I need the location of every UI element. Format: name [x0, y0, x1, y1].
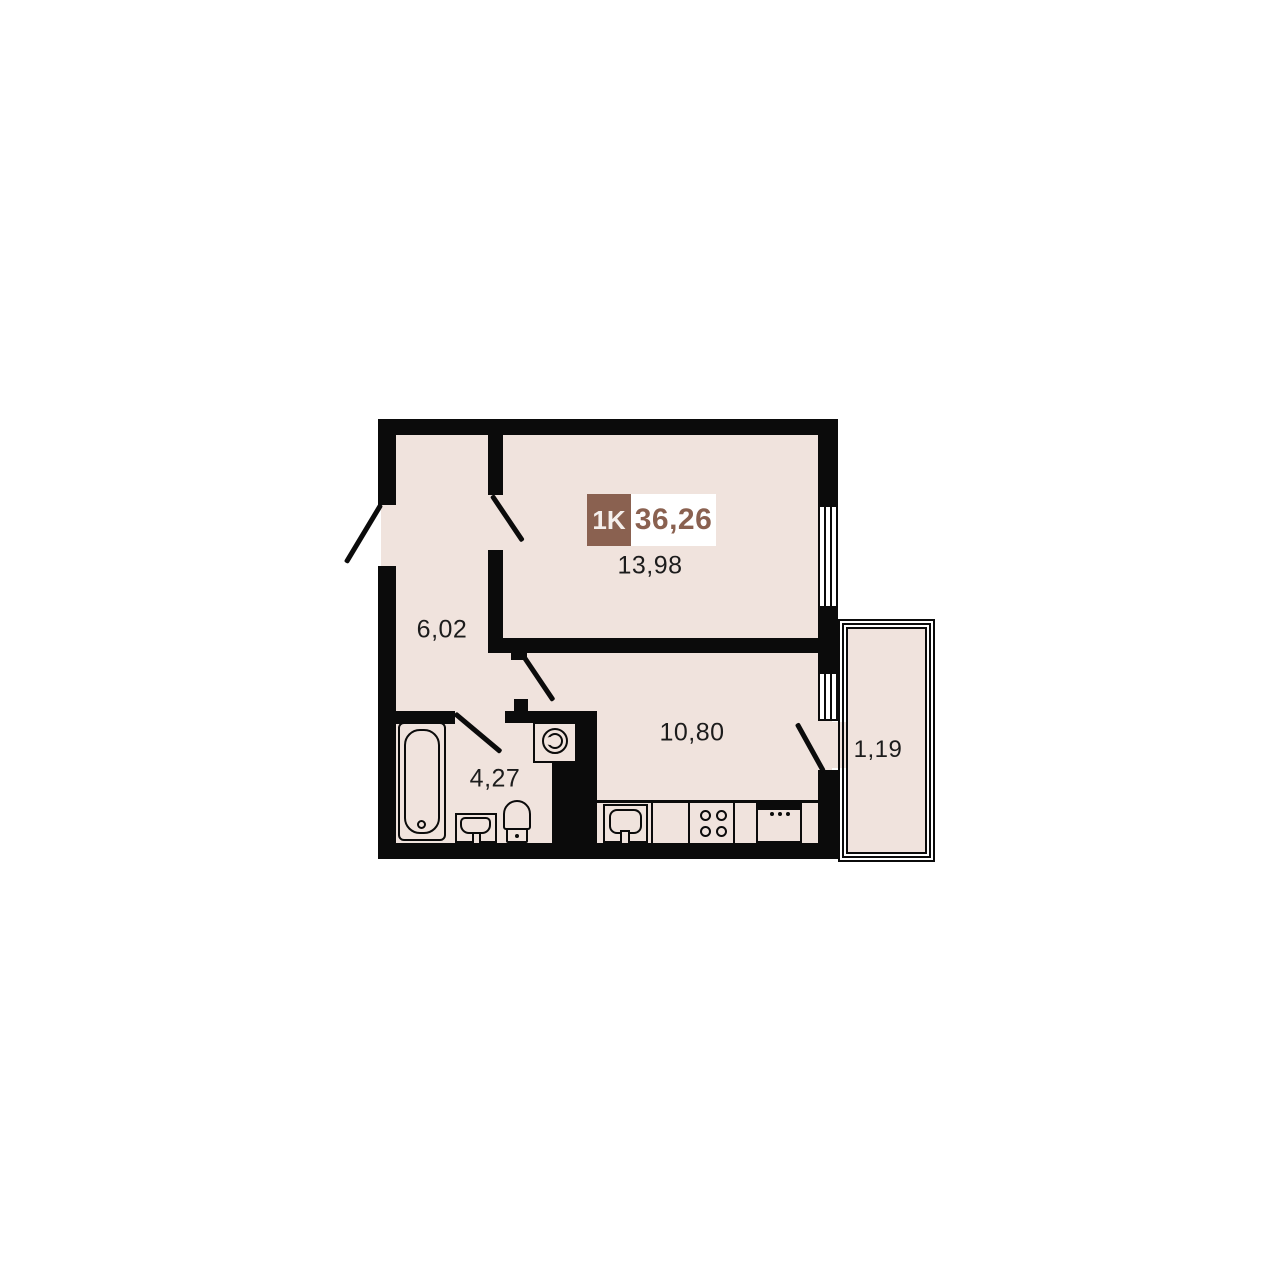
toilet-dot-icon [515, 834, 519, 838]
toilet-bowl-icon [503, 800, 531, 830]
counter-divider [651, 803, 653, 843]
wall-bathroom-bump [514, 699, 528, 711]
living-room-area-label: 13,98 [617, 552, 682, 581]
total-area-value: 36,26 [635, 503, 713, 537]
kitchen-window [818, 672, 838, 721]
kitchen-appliance-dot-icon [778, 812, 782, 816]
living-room-window [818, 505, 838, 608]
kitchen-appliance-strip-icon [758, 805, 800, 810]
kitchen-sink-tap-icon [620, 830, 630, 843]
wall-right-mid [818, 608, 838, 672]
wall-washer-step [552, 762, 577, 843]
entrance-door-swing-icon [344, 503, 383, 564]
stove-burner-icon [700, 826, 711, 837]
stove-burner-icon [716, 826, 727, 837]
wall-livingroom-bottom [488, 638, 818, 653]
bathtub-drain-icon [417, 820, 426, 829]
type-badge-label: 1K [592, 505, 625, 536]
stove-burner-icon [716, 810, 727, 821]
kitchen-appliance-dot-icon [770, 812, 774, 816]
wall-left-lower [378, 566, 396, 859]
stove-burner-icon [700, 810, 711, 821]
bathroom-sink-tap-icon [472, 832, 481, 843]
wall-top [378, 419, 838, 435]
window-pane-icon [824, 674, 826, 719]
wall-bottom [378, 843, 838, 859]
washing-machine-notch-icon [546, 737, 554, 745]
wall-partition-lower [488, 550, 503, 645]
bathtub-inner-icon [404, 729, 440, 834]
hallway-area-label: 6,02 [417, 616, 468, 645]
wall-bathroom-right [577, 711, 597, 843]
type-badge: 1K [587, 494, 631, 546]
wall-right-lower [818, 770, 838, 859]
wall-left-upper [378, 419, 396, 505]
kitchen-appliance-dot-icon [786, 812, 790, 816]
total-area-badge: 36,26 [631, 494, 716, 546]
balcony-area-label: 1,19 [854, 736, 903, 764]
wall-partition-upper [488, 433, 503, 495]
window-pane-icon [830, 674, 832, 719]
bathroom-area-label: 4,27 [470, 765, 521, 794]
window-pane-icon [830, 507, 832, 606]
wall-right-upper [818, 419, 838, 505]
counter-divider [688, 803, 690, 843]
floor-plan: 1K 36,26 13,98 6,02 10,80 4,27 1,19 [0, 0, 1280, 1280]
window-pane-icon [824, 507, 826, 606]
counter-divider [733, 803, 735, 843]
kitchen-area-label: 10,80 [659, 719, 724, 748]
